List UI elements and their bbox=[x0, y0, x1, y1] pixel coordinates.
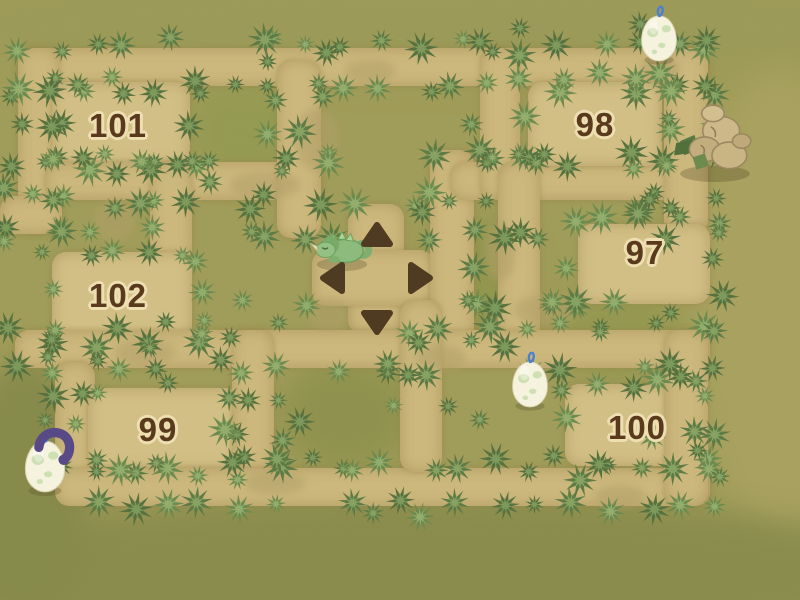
move-left-arrow[interactable] bbox=[316, 263, 350, 293]
bush bbox=[504, 12, 537, 45]
egg-center-bottom bbox=[530, 384, 574, 440]
player-dragon bbox=[342, 247, 408, 301]
maze-path bbox=[664, 330, 708, 506]
grass-patch bbox=[0, 495, 800, 600]
bush bbox=[237, 217, 268, 248]
room-number-label: 98 bbox=[576, 106, 615, 144]
move-up-arrow[interactable] bbox=[360, 220, 394, 250]
bush bbox=[465, 405, 496, 436]
maze-path bbox=[277, 60, 321, 238]
move-right-arrow[interactable] bbox=[403, 263, 437, 293]
maze-path bbox=[498, 162, 540, 342]
bush bbox=[225, 283, 259, 317]
rock-pile-right bbox=[715, 139, 799, 225]
bush bbox=[707, 464, 732, 489]
path-wear bbox=[95, 200, 135, 240]
room-number-label: 99 bbox=[139, 411, 178, 449]
room-number-label: 101 bbox=[89, 107, 147, 145]
maze-path bbox=[232, 330, 274, 472]
move-down-arrow[interactable] bbox=[360, 307, 394, 337]
maze-path bbox=[150, 162, 192, 262]
bush bbox=[658, 300, 684, 326]
room-number-label: 100 bbox=[608, 409, 666, 447]
maze-path bbox=[0, 196, 62, 234]
bush bbox=[34, 408, 57, 431]
bush bbox=[402, 193, 429, 220]
maze-path bbox=[55, 468, 710, 506]
room-number-label: 97 bbox=[626, 234, 665, 272]
grass-patch bbox=[280, 360, 410, 470]
egg-top-right bbox=[659, 38, 703, 94]
maze-path bbox=[400, 300, 442, 472]
maze-path bbox=[18, 48, 708, 86]
bush bbox=[76, 218, 103, 245]
game-map: 101981029799100 bbox=[0, 0, 800, 600]
rock-pile-left bbox=[0, 323, 46, 401]
egg-bottom-left-hatching bbox=[45, 466, 95, 528]
room-number-label: 102 bbox=[89, 277, 147, 315]
bush bbox=[279, 401, 321, 443]
